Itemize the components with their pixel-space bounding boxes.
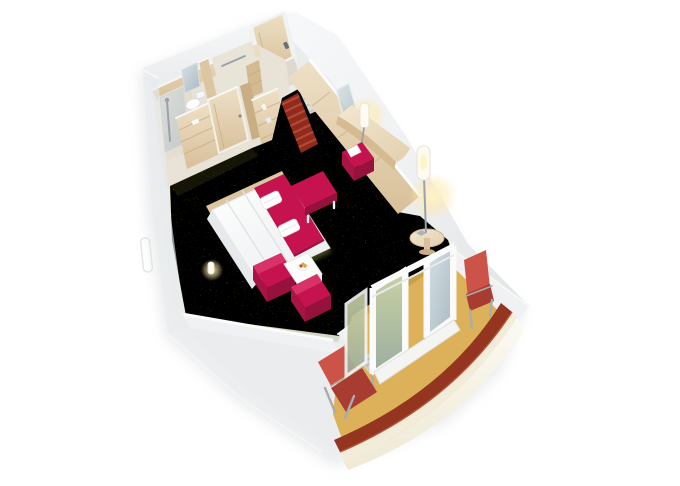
cabin-3d-floorplan bbox=[0, 0, 680, 486]
cabin-render-stage bbox=[0, 0, 680, 486]
floor-lamp-wall-glow bbox=[409, 172, 457, 220]
bedside-lamp bbox=[208, 262, 214, 274]
glass-pane-left bbox=[346, 290, 366, 376]
closet-handle bbox=[238, 114, 241, 117]
shower-head-icon bbox=[165, 98, 169, 102]
